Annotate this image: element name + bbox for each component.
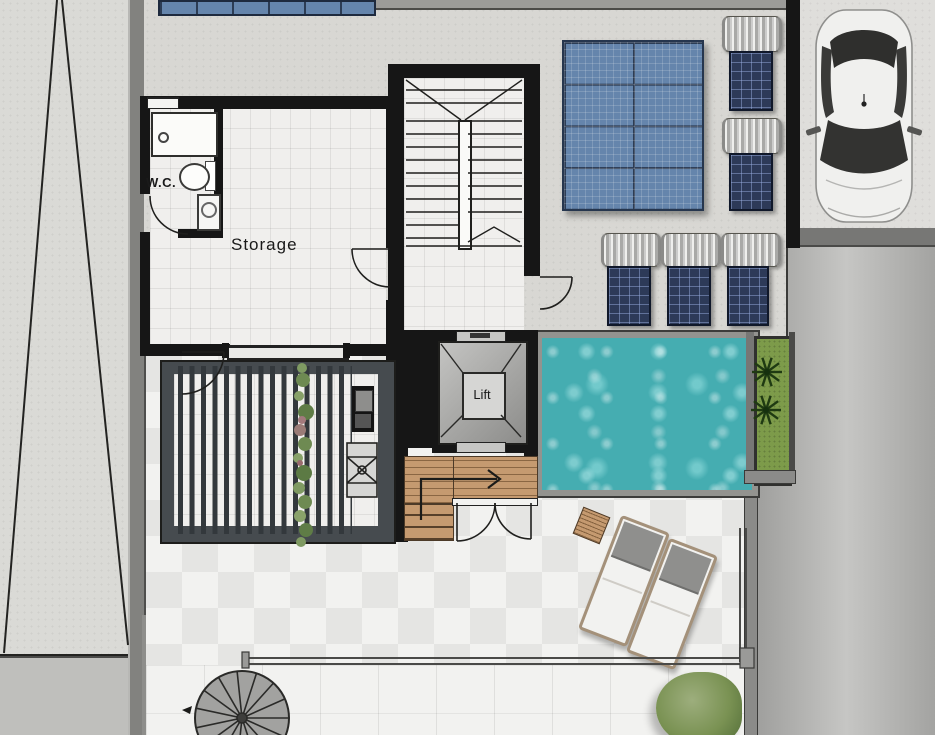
- window-post: [222, 343, 229, 358]
- solar-array: [562, 40, 704, 211]
- driveway-ramp: [0, 0, 130, 660]
- pool: [536, 332, 758, 496]
- pool-side-wall: [746, 332, 754, 482]
- wall: [140, 232, 150, 356]
- water-heater-tank: [722, 16, 782, 52]
- sink-basin: [201, 202, 217, 218]
- lounger-cushion: [611, 521, 664, 572]
- lounger-seam: [650, 600, 690, 617]
- stair-wall-top: [388, 64, 540, 78]
- window-storage: [227, 345, 349, 361]
- shower-drain-icon: [158, 132, 169, 143]
- stair-divider: [458, 120, 472, 250]
- stair-wall-left: [388, 64, 404, 332]
- water-heater-panel: [667, 266, 711, 326]
- deck-left: [404, 456, 454, 504]
- window-post: [343, 343, 350, 358]
- deck-upper: [452, 456, 538, 504]
- room-label-lift: Lift: [462, 387, 502, 402]
- water-heater-panel: [727, 266, 769, 326]
- bbq-unit-shelf: [355, 414, 371, 428]
- parking-curb: [800, 228, 935, 247]
- planter: [754, 336, 792, 486]
- deck-steps: [404, 504, 454, 541]
- lounger-cushion: [659, 544, 712, 595]
- water-heater-tank: [661, 233, 721, 267]
- pergola-slats: [178, 366, 352, 534]
- lift-wall-mass: [404, 342, 438, 448]
- lift-door-panel: [470, 333, 490, 338]
- stair-lobby-floor: [404, 246, 524, 332]
- solar-strip: [158, 0, 376, 16]
- stair-wall-right: [524, 64, 540, 276]
- wall-parking: [786, 0, 800, 248]
- tree: [656, 672, 742, 735]
- bbq-unit-top: [355, 390, 373, 412]
- lift-door: [456, 442, 506, 453]
- planter-outer-wall: [789, 332, 795, 482]
- window-wc: [147, 97, 179, 109]
- wall: [140, 344, 230, 356]
- water-heater-tank: [721, 233, 781, 267]
- water-heater-panel: [607, 266, 651, 326]
- planter-base-wall: [744, 470, 796, 484]
- parking-pad: [800, 0, 935, 232]
- water-heater-tank: [601, 233, 661, 267]
- water-heater-panel: [729, 51, 773, 111]
- door-track: [452, 498, 538, 506]
- room-label-wc: W.C.: [146, 175, 176, 190]
- water-heater-panel: [729, 153, 773, 211]
- water-heater-tank: [722, 118, 782, 154]
- room-label-storage: Storage: [231, 235, 298, 255]
- roof-top-strip: [372, 0, 788, 10]
- lower-court: [0, 656, 130, 735]
- floor-plan: W.C. Storage Lift: [0, 0, 935, 735]
- toilet-bowl: [179, 163, 210, 191]
- lounger-seam: [602, 577, 642, 594]
- terrace-edge-wall: [744, 478, 758, 735]
